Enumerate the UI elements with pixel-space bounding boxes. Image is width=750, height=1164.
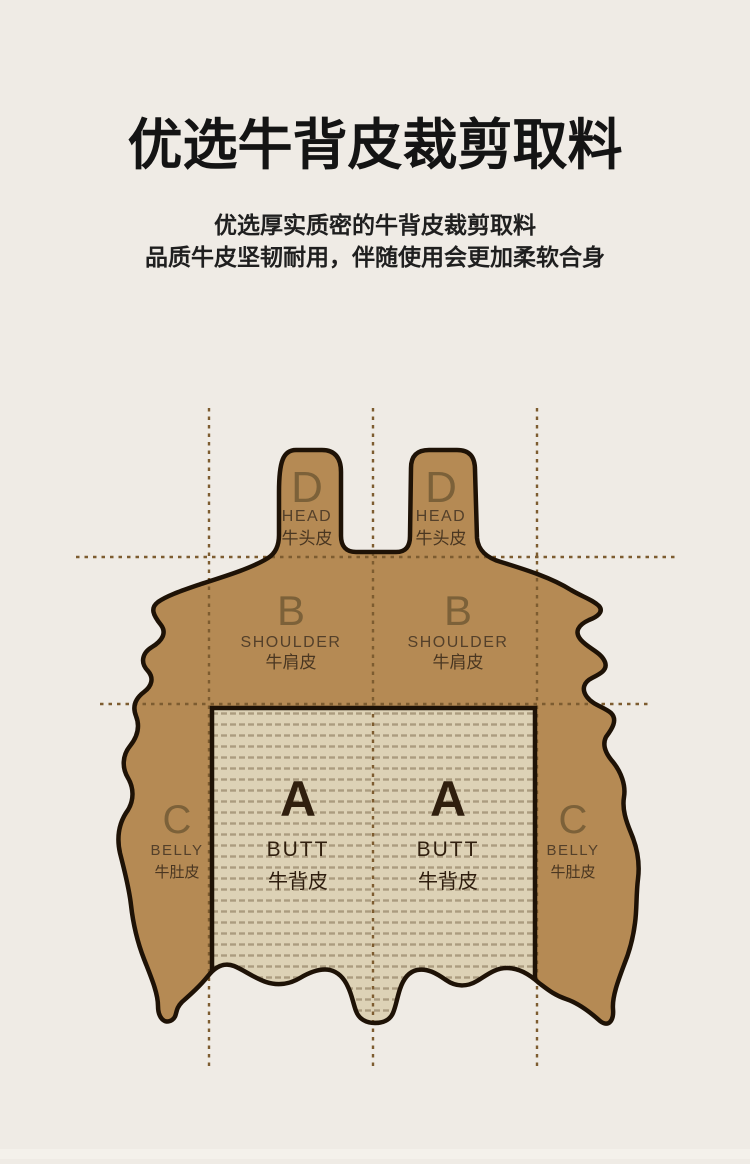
section-letter: B [277, 587, 305, 634]
section-letter: A [430, 771, 466, 827]
section-name-en: HEAD [282, 508, 332, 525]
section-name-en: BELLY [546, 842, 599, 859]
section-name-cn: 牛肚皮 [550, 864, 595, 881]
section-letter: D [425, 463, 457, 512]
section-name-cn: 牛头皮 [282, 529, 333, 548]
subtitle-line-2: 品质牛皮坚韧耐用，伴随使用会更加柔软合身 [0, 244, 750, 272]
section-name-en: BUTT [417, 838, 480, 861]
section-letter: D [291, 463, 323, 512]
section-name-cn: 牛肩皮 [266, 653, 317, 672]
section-letter: C [559, 798, 588, 842]
section-name-cn: 牛背皮 [268, 870, 328, 893]
cowhide-svg: D HEAD 牛头皮 D HEAD 牛头皮 B SHOULDER 牛肩皮 B S… [0, 390, 750, 1159]
section-letter: B [444, 587, 472, 634]
section-name-en: HEAD [416, 508, 466, 525]
section-name-cn: 牛头皮 [416, 529, 467, 548]
section-name-cn: 牛肚皮 [154, 864, 199, 881]
product-detail-section: 优选牛背皮裁剪取料 优选厚实质密的牛背皮裁剪取料 品质牛皮坚韧耐用，伴随使用会更… [0, 0, 750, 1159]
section-name-en: SHOULDER [241, 634, 342, 651]
section-name-cn: 牛背皮 [418, 870, 478, 893]
section-letter: C [163, 798, 192, 842]
section-divider [0, 1149, 750, 1159]
section-name-en: BUTT [267, 838, 330, 861]
section-name-en: BELLY [150, 842, 203, 859]
cowhide-cut-diagram: D HEAD 牛头皮 D HEAD 牛头皮 B SHOULDER 牛肩皮 B S… [0, 390, 750, 1159]
page-title: 优选牛背皮裁剪取料 [0, 114, 750, 177]
section-name-cn: 牛肩皮 [433, 653, 484, 672]
section-name-en: SHOULDER [408, 634, 509, 651]
subtitle-line-1: 优选厚实质密的牛背皮裁剪取料 [0, 212, 750, 240]
section-letter: A [280, 771, 316, 827]
